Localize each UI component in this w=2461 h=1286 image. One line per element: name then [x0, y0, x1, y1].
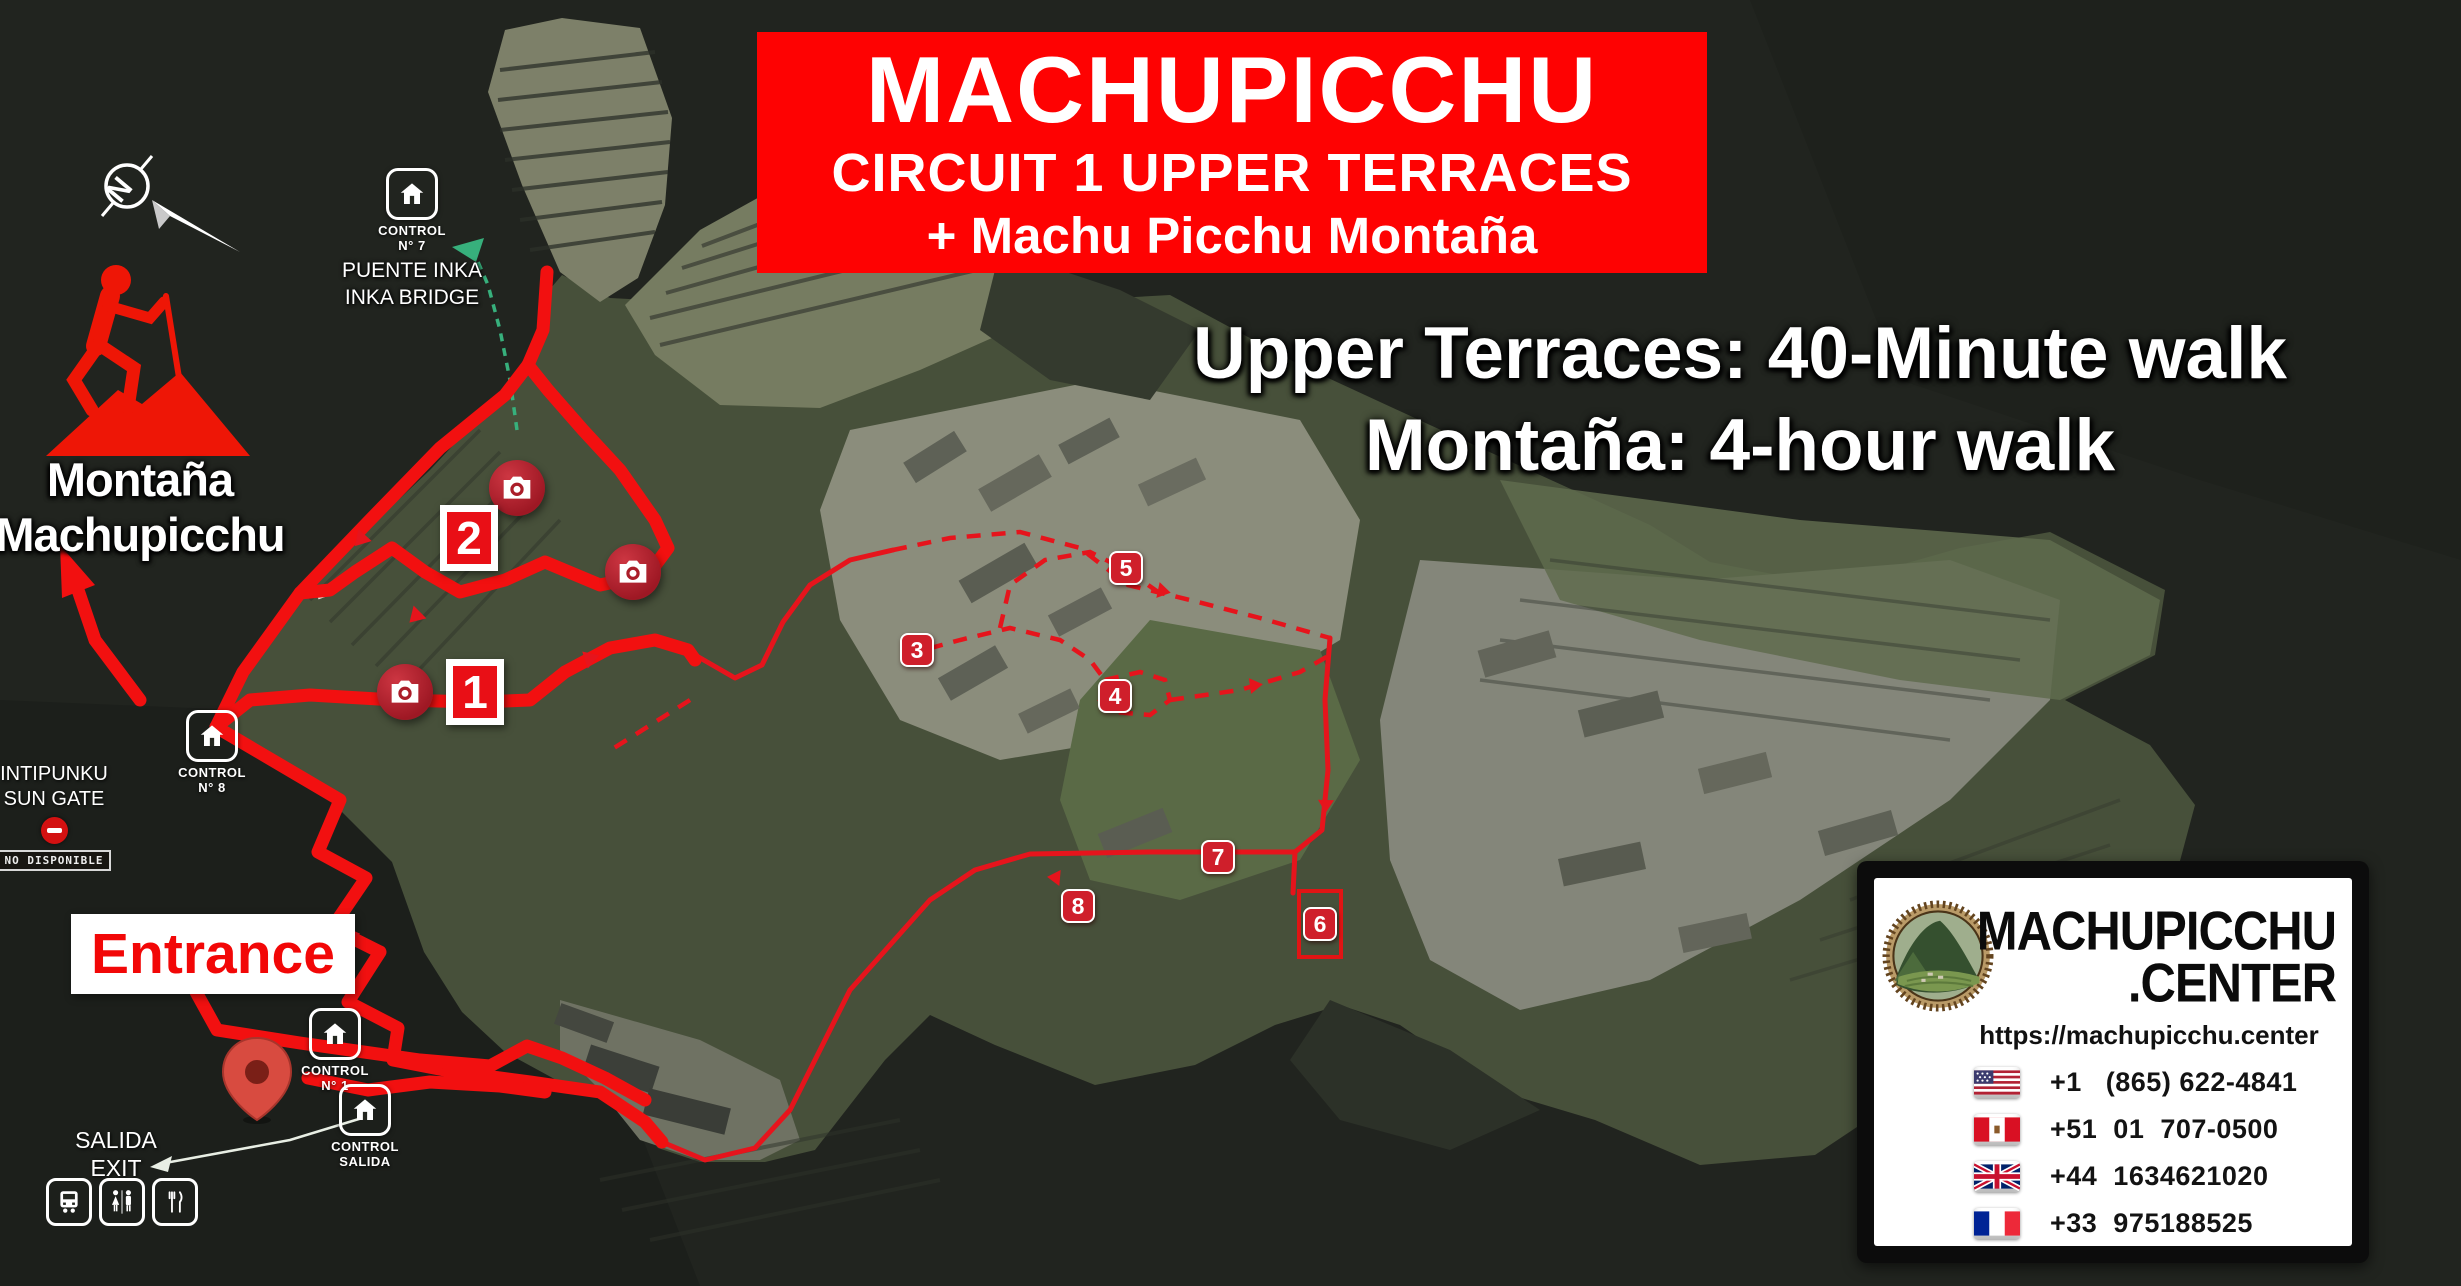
contact-info-card: MACHUPICCHU .CENTER https://machupicchu.…	[1857, 861, 2369, 1263]
circuit-marker-5: 5	[1109, 551, 1143, 585]
phone-row-uk: +44 1634621020	[1974, 1160, 2268, 1192]
puente-inka-name: PUENTE INKA INKA BRIDGE	[342, 257, 482, 311]
circuit-marker-6: 6	[1303, 907, 1337, 941]
control-1: CONTROL N° 1	[260, 1008, 410, 1093]
phone-row-peru: +51 01 707-0500	[1974, 1113, 2278, 1145]
brand-tld: .CENTER	[2128, 952, 2336, 1015]
control-8: CONTROL N° 8	[137, 710, 287, 795]
montana-label-line2: Machupicchu	[0, 507, 300, 562]
phone-row-usa: +1 (865) 622-4841	[1974, 1066, 2297, 1098]
no-entry-icon	[41, 817, 68, 844]
circuit-marker-8: 8	[1061, 889, 1095, 923]
status-badge: NO DISPONIBLE	[0, 850, 111, 871]
photo-spot-camera-icon	[377, 664, 433, 720]
title-line3: + Machu Picchu Montaña	[927, 206, 1538, 266]
machu-picchu-circuit-map: { "banner": { "line1": "MACHUPICCHU", "l…	[0, 0, 2461, 1286]
control-house-icon	[339, 1084, 391, 1136]
subtitle-line2: Montaña: 4-hour walk	[1040, 400, 2440, 492]
control-number: N° 7	[398, 238, 425, 253]
phone-number: +44 1634621020	[2050, 1161, 2268, 1192]
title-line2: CIRCUIT 1 UPPER TERRACES	[831, 140, 1632, 206]
title-line1: MACHUPICCHU	[866, 40, 1598, 140]
restaurant-icon	[152, 1178, 198, 1226]
restroom-icon	[99, 1178, 145, 1226]
peru-flag-icon	[1974, 1114, 2020, 1145]
usa-flag-icon	[1974, 1067, 2020, 1098]
sun-gate-name: SUN GATE	[4, 787, 105, 812]
intipunku-name: INTIPUNKU	[0, 762, 108, 787]
intipunku-sun-gate: INTIPUNKU SUN GATE NO DISPONIBLE	[0, 762, 114, 871]
website-url: https://machupicchu.center	[1954, 1020, 2344, 1051]
phone-number: +1 (865) 622-4841	[2050, 1067, 2297, 1098]
control-house-icon	[386, 168, 438, 220]
facilities-icons	[46, 1178, 198, 1226]
control-label: CONTROL	[331, 1139, 399, 1154]
phone-number: +51 01 707-0500	[2050, 1114, 2278, 1145]
circuit-marker-1: 1	[446, 659, 504, 725]
phone-row-france: +33 975188525	[1974, 1207, 2253, 1239]
control-label: CONTROL	[378, 223, 446, 238]
control-number: N° 8	[198, 780, 225, 795]
phone-number: +33 975188525	[2050, 1208, 2253, 1239]
photo-spot-camera-icon	[605, 544, 661, 600]
title-banner: MACHUPICCHU CIRCUIT 1 UPPER TERRACES + M…	[757, 32, 1707, 273]
control-house-icon	[309, 1008, 361, 1060]
bus-icon	[46, 1178, 92, 1226]
circuit-marker-4: 4	[1098, 679, 1132, 713]
circuit-marker-3: 3	[900, 633, 934, 667]
control-label: CONTROL	[301, 1063, 369, 1078]
entrance-label: Entrance	[91, 921, 335, 987]
control-label: CONTROL	[178, 765, 246, 780]
control-house-icon	[186, 710, 238, 762]
salida-exit-label: SALIDA EXIT	[60, 1126, 172, 1182]
control-number: SALIDA	[339, 1154, 390, 1169]
control-puente-inka: CONTROL N° 7 PUENTE INKA INKA BRIDGE	[337, 168, 487, 311]
france-flag-icon	[1974, 1208, 2020, 1239]
control-salida: CONTROL SALIDA	[290, 1084, 440, 1169]
walk-time-subtitle: Upper Terraces: 40-Minute walk Montaña: …	[1040, 308, 2440, 492]
circuit-marker-7: 7	[1201, 840, 1235, 874]
subtitle-line1: Upper Terraces: 40-Minute walk	[1040, 308, 2440, 400]
uk-flag-icon	[1974, 1161, 2020, 1192]
entrance-label-box: Entrance	[71, 914, 355, 994]
montana-label-line1: Montaña	[0, 452, 300, 507]
montana-label: Montaña Machupicchu	[0, 452, 300, 562]
circuit-marker-2: 2	[440, 505, 498, 571]
